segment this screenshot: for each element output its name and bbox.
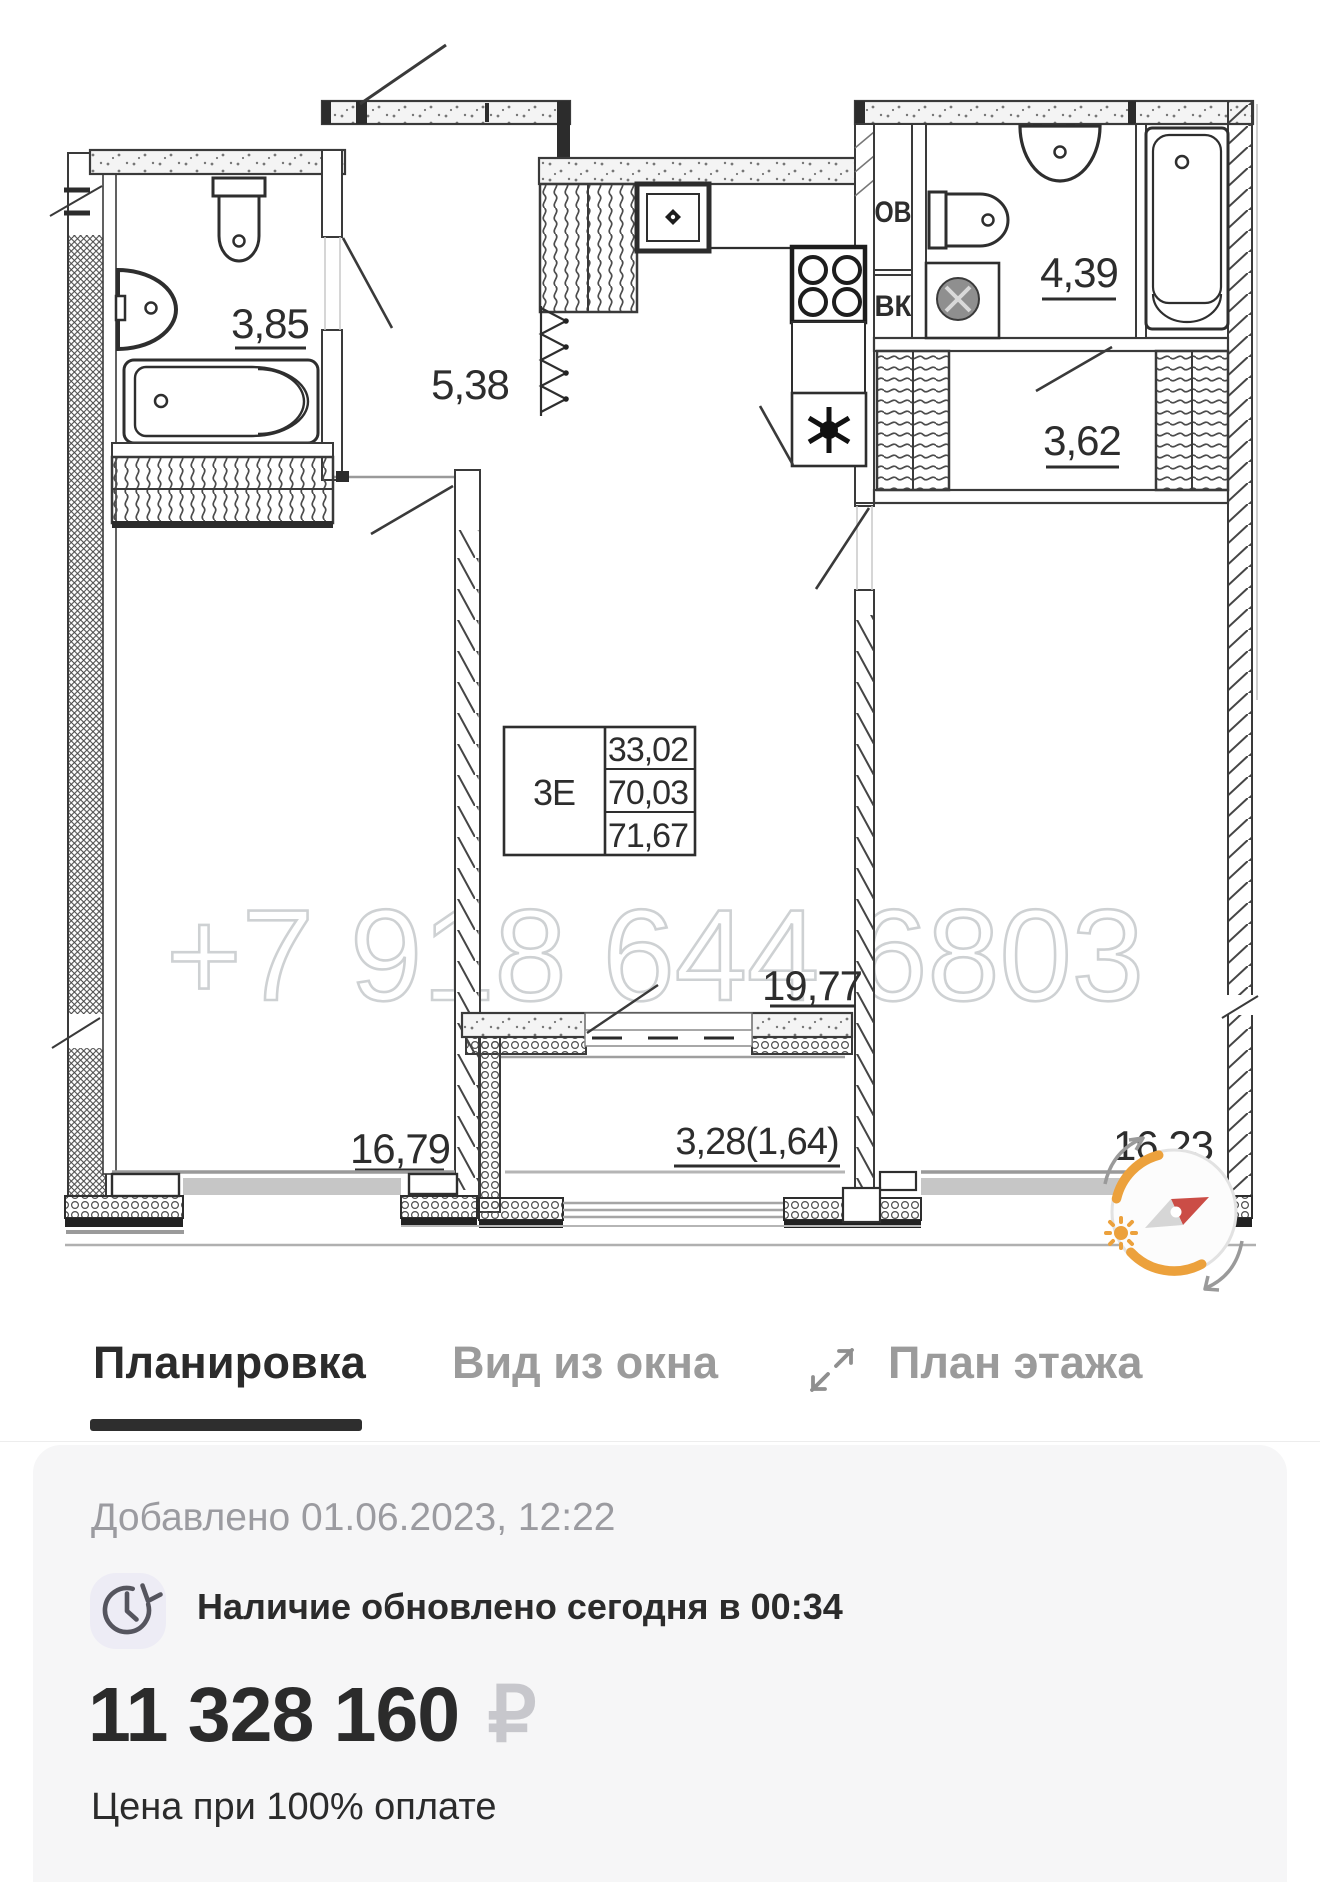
svg-text:ВК: ВК [875, 290, 913, 323]
svg-text:71,67: 71,67 [608, 817, 688, 855]
svg-text:33,02: 33,02 [608, 731, 688, 769]
svg-text:5,38: 5,38 [431, 361, 509, 408]
svg-text:3,85: 3,85 [231, 300, 309, 347]
svg-text:3,28(1,64): 3,28(1,64) [675, 1121, 838, 1163]
svg-text:16,79: 16,79 [350, 1125, 450, 1172]
svg-text:4,39: 4,39 [1040, 249, 1118, 296]
svg-text:19,77: 19,77 [762, 962, 862, 1009]
svg-text:3Е: 3Е [533, 772, 575, 813]
svg-text:3,62: 3,62 [1043, 417, 1121, 464]
svg-text:+7 918 644 6803: +7 918 644 6803 [166, 882, 1144, 1028]
svg-text:70,03: 70,03 [608, 774, 688, 812]
svg-text:ОВ: ОВ [875, 196, 912, 229]
